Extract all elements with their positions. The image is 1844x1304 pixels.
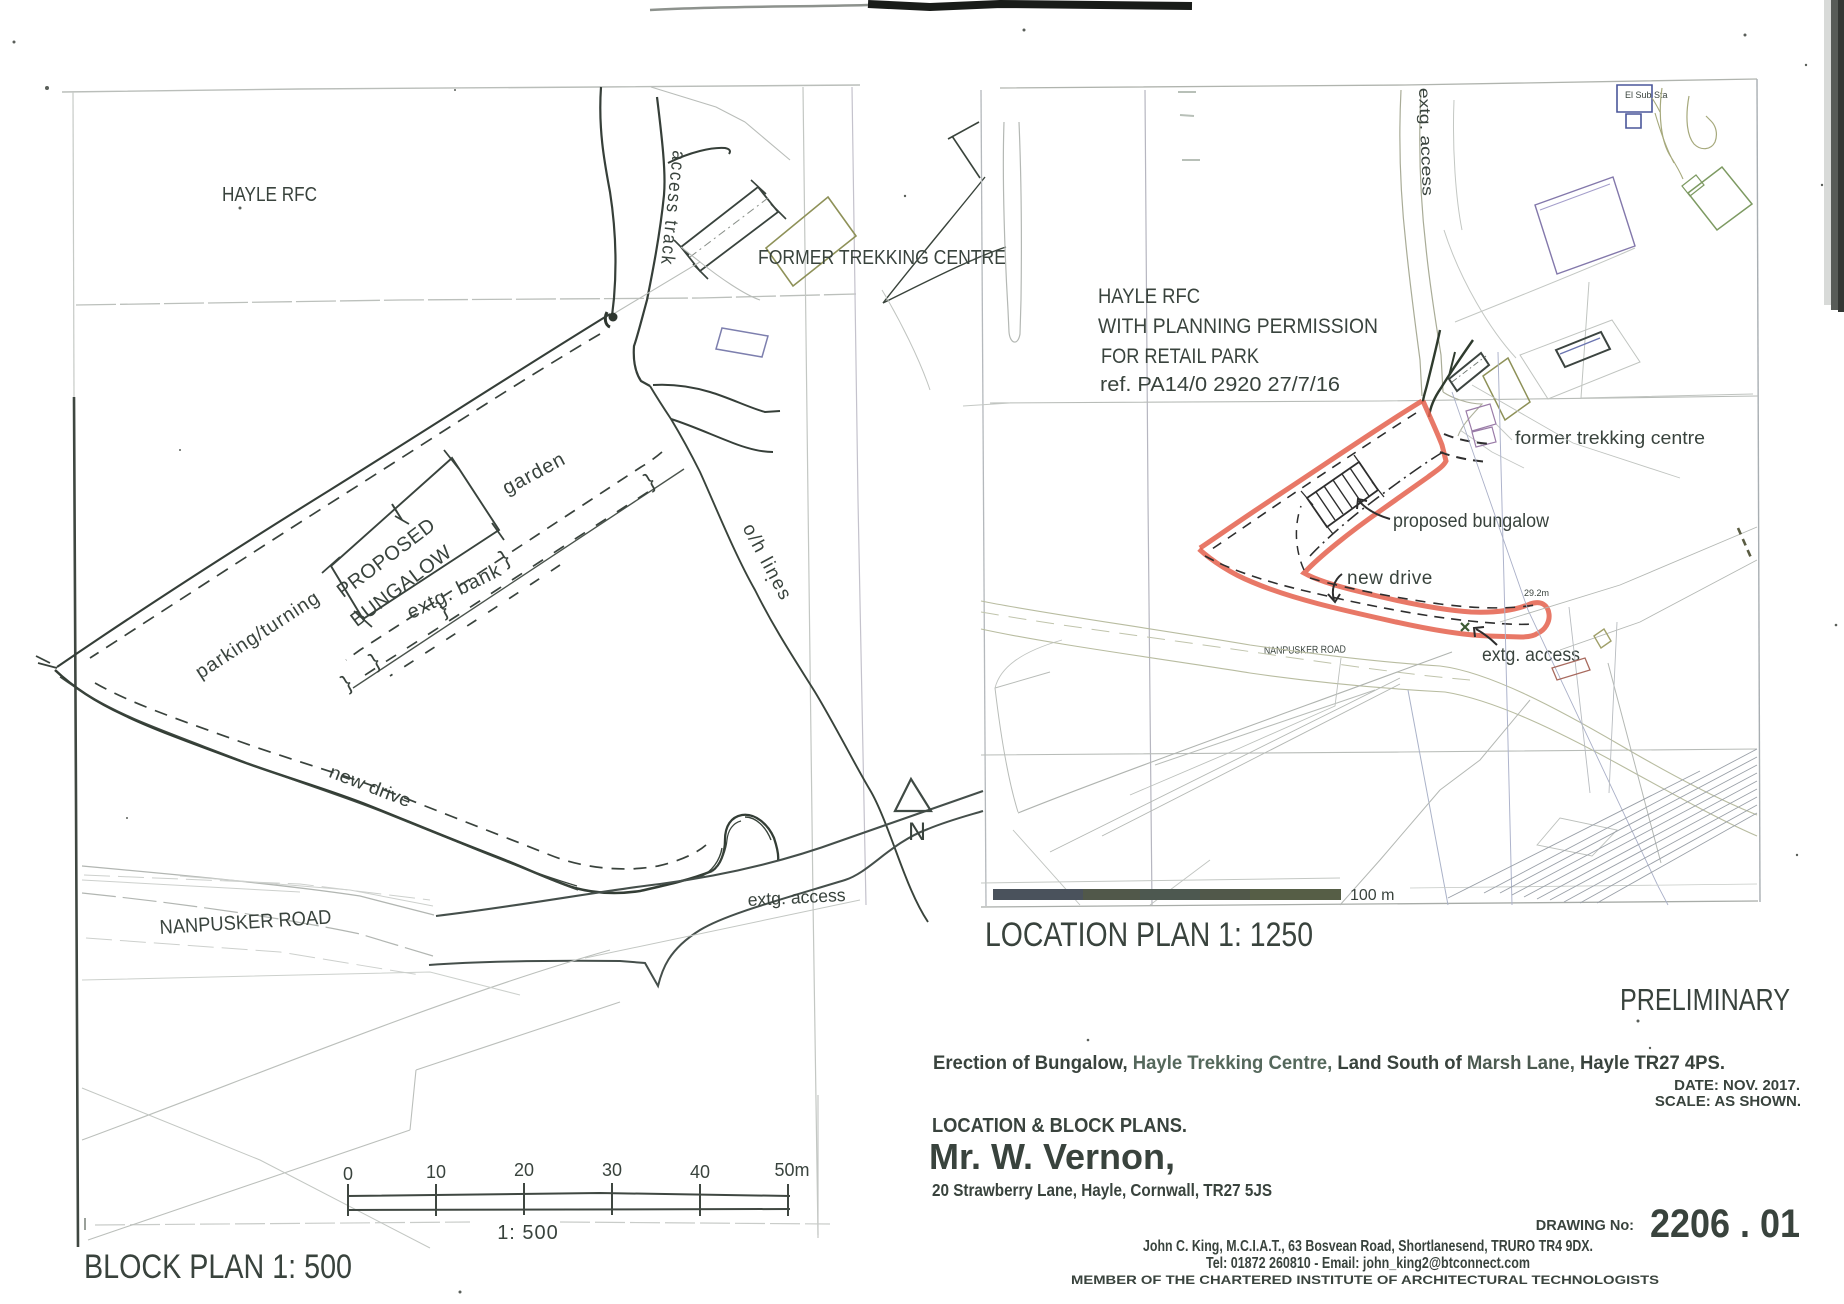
- svg-text:DRAWING No:: DRAWING No:: [1536, 1218, 1634, 1234]
- svg-text:29.2m: 29.2m: [1524, 588, 1549, 598]
- svg-text:NANPUSKER ROAD: NANPUSKER ROAD: [1264, 644, 1347, 657]
- svg-text:HAYLE RFC: HAYLE RFC: [1098, 285, 1200, 308]
- svg-text:20 Strawberry Lane, Hayle, Cor: 20 Strawberry Lane, Hayle, Cornwall, TR2…: [932, 1180, 1272, 1200]
- svg-text:PRELIMINARY: PRELIMINARY: [1620, 982, 1790, 1017]
- svg-text:WITH PLANNING PERMISSION: WITH PLANNING PERMISSION: [1098, 315, 1378, 338]
- svg-text:BLOCK PLAN 1: 500: BLOCK PLAN 1: 500: [84, 1248, 352, 1286]
- svg-text:100 m: 100 m: [1350, 887, 1394, 904]
- svg-text:ref. PA14/0 2920 27/7/16: ref. PA14/0 2920 27/7/16: [1100, 374, 1340, 396]
- svg-text:former trekking centre: former trekking centre: [1515, 428, 1705, 448]
- svg-text:proposed bungalow: proposed bungalow: [1393, 511, 1549, 532]
- svg-text:30: 30: [602, 1160, 622, 1180]
- svg-text:0: 0: [343, 1164, 353, 1184]
- svg-text:new drive: new drive: [1347, 568, 1433, 589]
- svg-text:10: 10: [426, 1162, 446, 1182]
- svg-text:N: N: [908, 818, 926, 846]
- svg-text:LOCATION PLAN 1: 1250: LOCATION PLAN 1: 1250: [985, 916, 1313, 954]
- svg-text:50m: 50m: [774, 1160, 809, 1180]
- svg-text:LOCATION & BLOCK PLANS.: LOCATION & BLOCK PLANS.: [932, 1115, 1187, 1137]
- svg-text:Erection of Bungalow, Hayle Tr: Erection of Bungalow, Hayle Trekking Cen…: [933, 1052, 1725, 1074]
- svg-text:20: 20: [514, 1160, 534, 1180]
- svg-text:MEMBER OF THE CHARTERED INSTIT: MEMBER OF THE CHARTERED INSTITUTE OF ARC…: [1071, 1275, 1659, 1287]
- svg-text:40: 40: [690, 1162, 710, 1182]
- svg-text:John C. King, M.C.I.A.T., 63 B: John C. King, M.C.I.A.T., 63 Bosvean Roa…: [1143, 1238, 1593, 1255]
- svg-text:Mr. W. Vernon,: Mr. W. Vernon,: [929, 1136, 1175, 1177]
- svg-text:2206 . 01: 2206 . 01: [1650, 1202, 1800, 1246]
- svg-text:1: 500: 1: 500: [497, 1222, 559, 1244]
- svg-text:FOR RETAIL PARK: FOR RETAIL PARK: [1101, 345, 1259, 368]
- svg-text:Tel: 01872 260810 - Email: jo: Tel: 01872 260810 - Email: john_king2@bt…: [1206, 1255, 1530, 1272]
- svg-text:SCALE: AS SHOWN.: SCALE: AS SHOWN.: [1655, 1093, 1801, 1110]
- svg-text:FORMER TREKKING CENTRE: FORMER TREKKING CENTRE: [758, 247, 1006, 269]
- svg-text:DATE: NOV. 2017.: DATE: NOV. 2017.: [1674, 1077, 1800, 1094]
- svg-text:HAYLE RFC: HAYLE RFC: [222, 184, 317, 206]
